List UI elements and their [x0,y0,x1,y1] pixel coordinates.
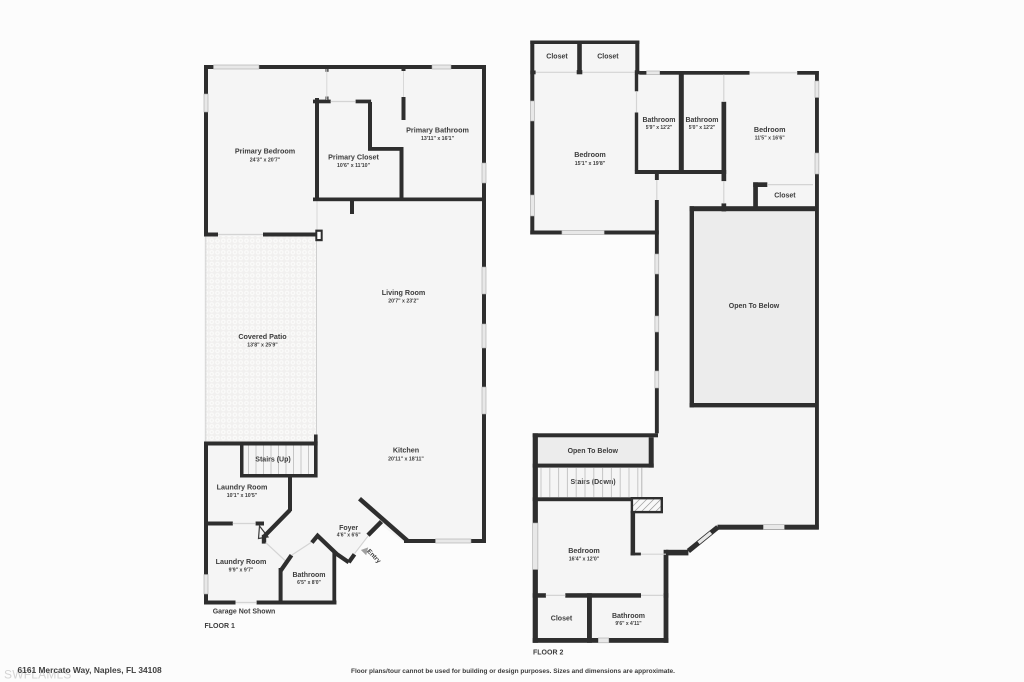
svg-text:Bedroom: Bedroom [568,546,600,555]
svg-text:5'9" x 12'2": 5'9" x 12'2" [646,125,673,131]
svg-text:Foyer: Foyer [339,525,358,532]
svg-text:Bathroom: Bathroom [292,572,325,579]
svg-text:Stairs (Up): Stairs (Up) [255,457,290,464]
svg-text:Primary Bedroom: Primary Bedroom [235,147,295,156]
svg-text:Closet: Closet [597,54,619,61]
svg-text:Open To Below: Open To Below [729,303,780,310]
svg-text:Bathroom: Bathroom [685,117,718,124]
svg-text:9'9" x 9'7": 9'9" x 9'7" [229,567,254,573]
svg-text:5'0" x 12'2": 5'0" x 12'2" [689,125,716,131]
svg-text:11'5" x 16'6": 11'5" x 16'6" [755,136,786,142]
svg-text:Closet: Closet [546,54,568,61]
svg-text:Bathroom: Bathroom [612,613,645,620]
svg-text:Open To Below: Open To Below [568,448,619,455]
svg-text:Laundry Room: Laundry Room [216,557,267,566]
svg-text:Covered Patio: Covered Patio [238,332,287,341]
svg-text:13'11" x 16'1": 13'11" x 16'1" [421,136,455,142]
svg-text:6'5" x 8'0": 6'5" x 8'0" [297,580,321,586]
svg-text:Garage Not Shown: Garage Not Shown [213,609,276,616]
svg-text:Bedroom: Bedroom [754,125,786,134]
svg-text:Living Room: Living Room [382,288,426,297]
svg-text:10'6" x 11'10": 10'6" x 11'10" [337,163,371,169]
svg-text:Stairs (Down): Stairs (Down) [570,479,615,486]
svg-text:13'8" x 25'9": 13'8" x 25'9" [247,342,278,348]
svg-text:Primary Bathroom: Primary Bathroom [406,126,469,135]
svg-text:4'6" x 6'6": 4'6" x 6'6" [337,533,361,539]
svg-text:20'7" x 23'2": 20'7" x 23'2" [388,298,419,304]
svg-text:9'6" x 4'11": 9'6" x 4'11" [615,621,642,627]
svg-text:15'1" x 19'8": 15'1" x 19'8" [575,161,606,167]
svg-text:24'3" x 20'7": 24'3" x 20'7" [250,158,281,164]
svg-text:6161 Mercato Way, Naples, FL 3: 6161 Mercato Way, Naples, FL 34108 [18,665,162,675]
svg-text:FLOOR 2: FLOOR 2 [533,650,563,657]
svg-text:Primary Closet: Primary Closet [328,153,379,162]
svg-text:Kitchen: Kitchen [393,446,419,455]
svg-text:Closet: Closet [551,616,573,623]
svg-text:Laundry Room: Laundry Room [217,483,268,492]
svg-text:20'11" x 18'11": 20'11" x 18'11" [388,457,424,463]
svg-text:10'1" x 10'5": 10'1" x 10'5" [227,493,258,499]
svg-text:Bathroom: Bathroom [642,117,675,124]
svg-text:FLOOR 1: FLOOR 1 [205,623,235,630]
svg-text:Bedroom: Bedroom [574,150,606,159]
svg-text:16'4" x 12'0": 16'4" x 12'0" [569,556,600,562]
svg-text:Floor plans/tour cannot be use: Floor plans/tour cannot be used for buil… [351,668,675,675]
svg-text:Closet: Closet [774,192,796,199]
